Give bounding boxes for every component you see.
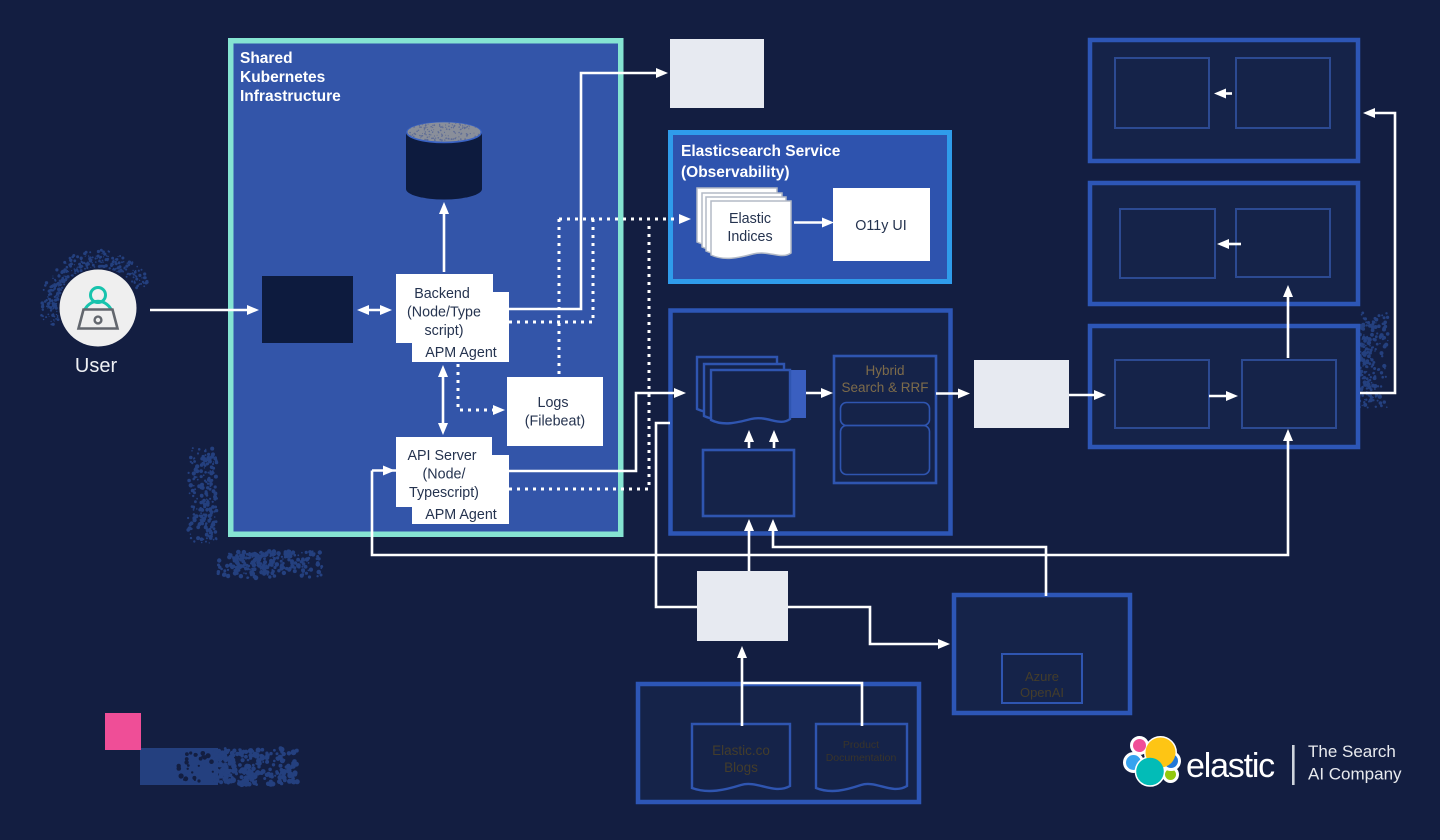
svg-text:elastic: elastic: [1186, 747, 1275, 785]
svg-text:APM Agent: APM Agent: [425, 345, 497, 361]
svg-text:APM Agent: APM Agent: [425, 507, 497, 523]
svg-text:O11y UI: O11y UI: [855, 218, 906, 234]
svg-text:User: User: [75, 355, 118, 377]
svg-text:AzureOpenAI: AzureOpenAI: [1020, 669, 1064, 700]
